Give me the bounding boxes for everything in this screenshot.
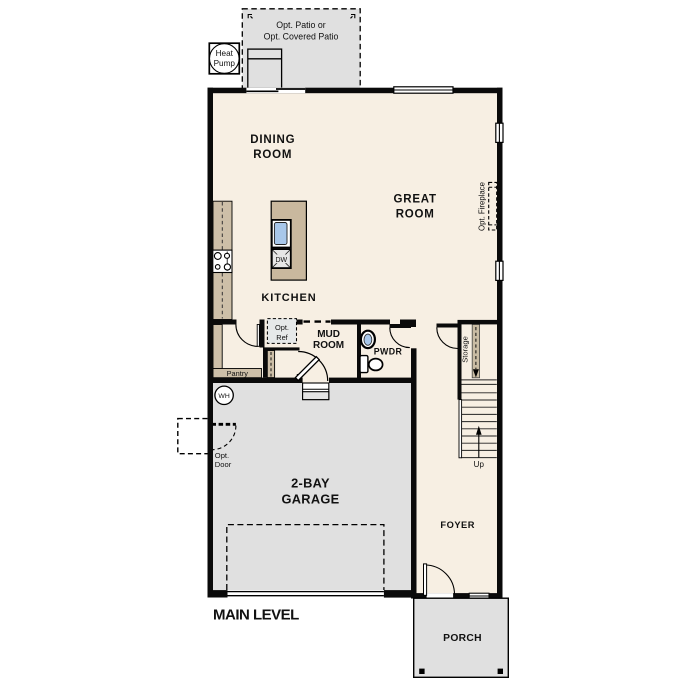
svg-text:Heat: Heat — [216, 49, 234, 58]
svg-text:MAIN LEVEL: MAIN LEVEL — [213, 607, 299, 624]
svg-text:DINING: DINING — [250, 134, 295, 146]
svg-text:Opt. Fireplace: Opt. Fireplace — [477, 182, 486, 231]
svg-text:Pantry: Pantry — [227, 369, 249, 378]
svg-text:PORCH: PORCH — [443, 633, 482, 644]
svg-text:Up: Up — [474, 460, 485, 469]
svg-text:WH: WH — [218, 393, 229, 400]
svg-text:Opt.: Opt. — [275, 323, 289, 332]
svg-text:Pump: Pump — [214, 59, 236, 68]
svg-text:ROOM: ROOM — [253, 149, 292, 161]
svg-text:Opt. Covered Patio: Opt. Covered Patio — [264, 32, 339, 42]
svg-text:ROOM: ROOM — [396, 209, 435, 221]
svg-text:Ref: Ref — [276, 333, 288, 342]
svg-text:Door: Door — [215, 460, 232, 469]
svg-text:Storage: Storage — [461, 336, 470, 363]
svg-text:ROOM: ROOM — [313, 340, 344, 351]
svg-text:2-BAY: 2-BAY — [291, 476, 330, 491]
svg-text:GARAGE: GARAGE — [282, 492, 340, 507]
svg-text:PWDR: PWDR — [374, 347, 403, 357]
svg-text:Opt.: Opt. — [215, 451, 229, 460]
svg-text:MUD: MUD — [317, 329, 340, 340]
svg-text:DW: DW — [275, 257, 287, 264]
svg-text:FOYER: FOYER — [440, 520, 475, 530]
svg-text:GREAT: GREAT — [393, 194, 436, 206]
svg-text:KITCHEN: KITCHEN — [261, 292, 316, 304]
svg-text:Opt. Patio or: Opt. Patio or — [276, 20, 325, 30]
